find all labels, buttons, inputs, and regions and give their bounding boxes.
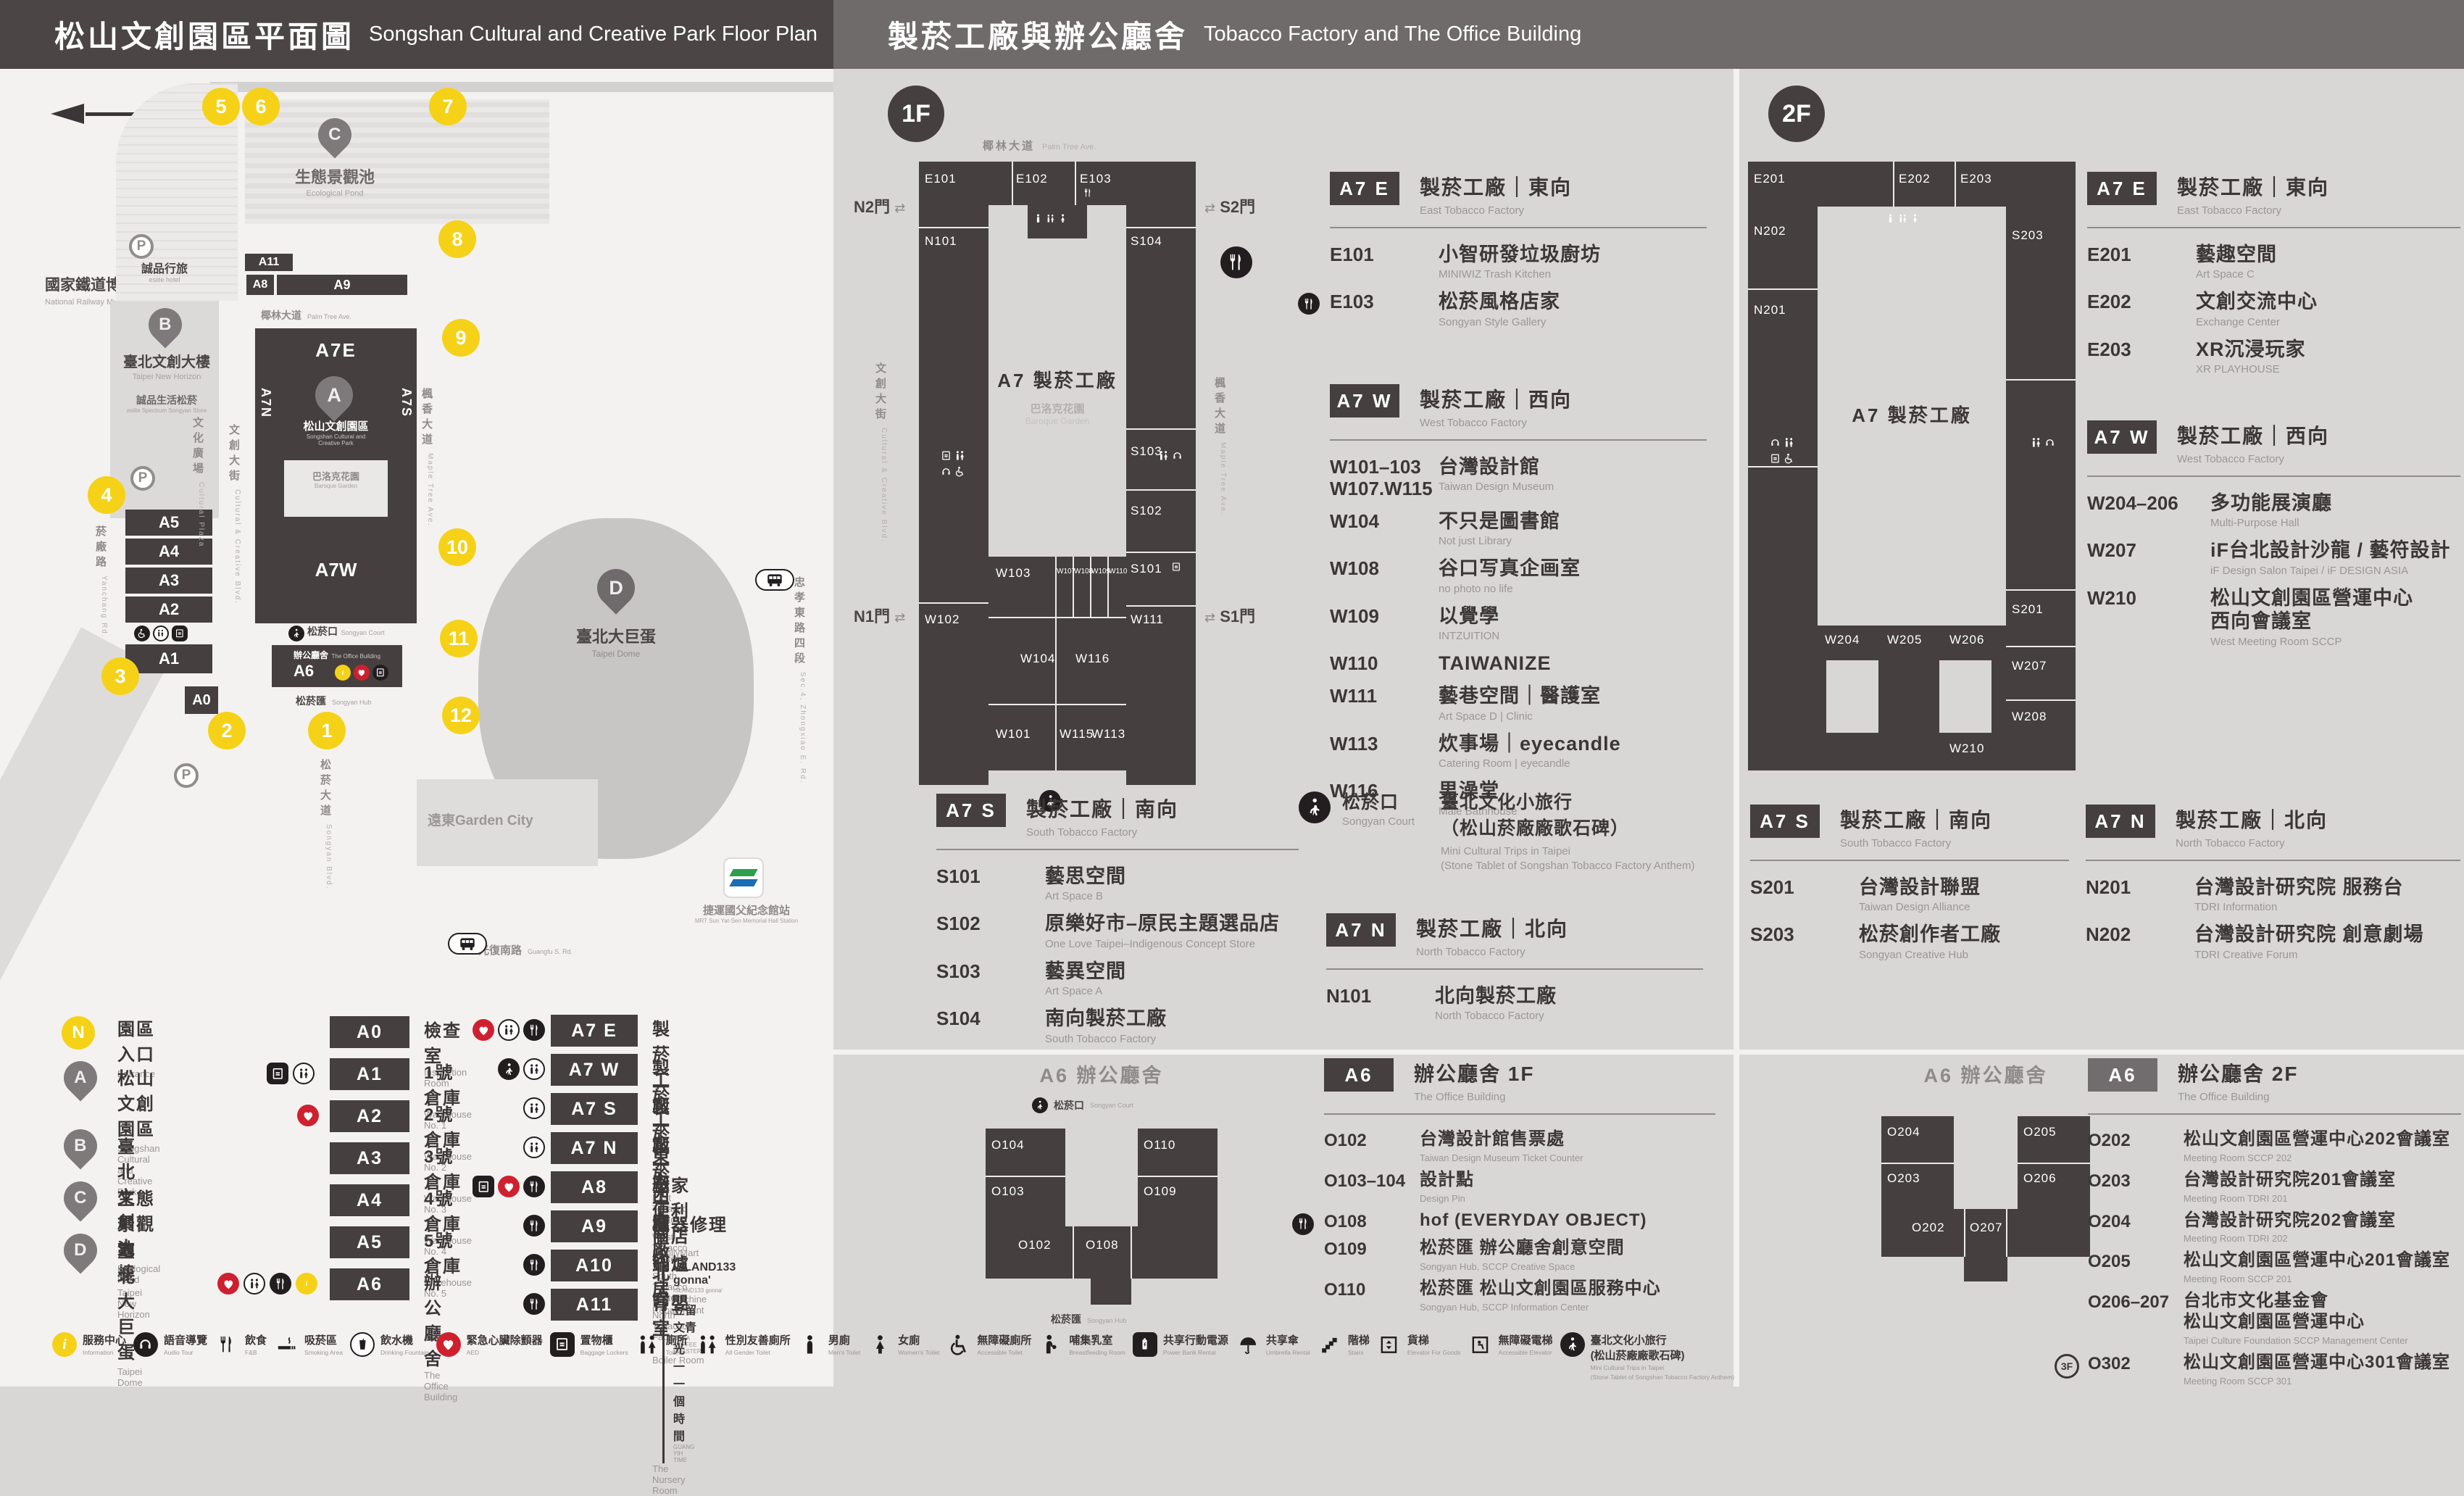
entrance-9: 9: [442, 319, 480, 357]
room-row: E202文創交流中心Exchange Center: [2087, 290, 2460, 328]
songyan-hub-label: 松菸匯Songyan Hub: [296, 694, 372, 708]
accessible-toilet-icon: [946, 1332, 971, 1357]
songyan-hub-plan-label: 松菸匯Songyan Hub: [1051, 1312, 1127, 1326]
room-row: O109松菸匯 辦公廳舍創意空間Songyan Hub, SCCP Creati…: [1324, 1238, 1715, 1272]
plan-room: O202: [1912, 1221, 1945, 1235]
section-a6-1f: A6 辦公廳舍 1FThe Office Building O102台灣設計館售…: [1324, 1058, 1715, 1319]
aed-icon: [217, 1273, 239, 1295]
fnb-icon: [523, 1215, 545, 1237]
dome-label: 臺北大巨蛋 Taipei Dome: [529, 624, 703, 659]
audio-tour-icon: [133, 1332, 158, 1357]
room-row: W207iF台北設計沙龍 / 藝符設計iF Design Salon Taipe…: [2087, 539, 2460, 576]
songyan-blvd-label: 松菸大道Songyan Blvd.: [317, 759, 333, 890]
warehouse-icons: [134, 626, 188, 641]
info-icon: i: [52, 1332, 77, 1357]
a7e-badge: A7 E: [2087, 172, 2157, 205]
mrt-label: 捷運國父紀念館站 MRT Sun Yat-Sen Memorial Hall S…: [652, 902, 833, 924]
power-bank-icon: [1133, 1332, 1157, 1357]
room-row: O108hof (EVERYDAY OBJECT): [1324, 1210, 1715, 1232]
room-row: O110松菸匯 松山文創園區服務中心Songyan Hub, SCCP Info…: [1324, 1279, 1715, 1313]
legend-a1-icons: [267, 1063, 315, 1084]
locker-icon: [372, 665, 388, 681]
room-row: O205松山文創園區營運中心201會議室Meeting Room SCCP 20…: [2088, 1250, 2461, 1284]
fnb-icon: [215, 1332, 239, 1357]
park-label: 松山文創園區 Songshan Cultural and Creative Pa…: [255, 418, 417, 446]
aed-icon: [436, 1332, 461, 1357]
toilet-icon: [153, 626, 169, 641]
parking-icon: P: [129, 234, 154, 259]
plan-room: O109: [1144, 1184, 1177, 1199]
mini-trip-icon: [288, 626, 304, 641]
plan-room: O102: [1018, 1238, 1052, 1252]
facility-item: 置物櫃Baggage Lockers: [550, 1332, 628, 1381]
legend-a5-badge: A5: [330, 1226, 409, 1258]
locker-icon: [172, 626, 188, 641]
room-row: E101小智研發垃圾廚坊MINIWIZ Trash Kitchen: [1330, 243, 1707, 280]
zhongxiao-rd-label: 忠孝東路四段Sec.4, Zhongxiao E. Rd.: [791, 576, 807, 784]
section-title-en: Tobacco Factory and The Office Building: [1204, 22, 1581, 46]
new-horizon-label: 臺北文創大樓 Taipei New Horizon 誠品生活松菸 eslite …: [101, 350, 232, 414]
fnb-icon: [523, 1254, 545, 1276]
plan-room: O103: [991, 1184, 1025, 1199]
plan-room: O104: [991, 1138, 1025, 1152]
fnb-icon: [270, 1273, 291, 1295]
entrance-6: 6: [242, 88, 280, 125]
plan-room: W113: [1091, 727, 1125, 741]
map-a0: A0: [185, 686, 218, 714]
plan-room: W101: [996, 727, 1031, 741]
maple-ave-label-1f: 楓香大道Maple Tree Ave.: [1212, 377, 1227, 516]
plan-room: E102: [1016, 172, 1048, 186]
plan-room: W207: [2012, 659, 2047, 673]
legend-a9-badge: A9: [551, 1210, 638, 1242]
a6-badge: A6: [1324, 1058, 1394, 1092]
toilet-icon: [636, 1332, 660, 1357]
legend-a1-badge: A1: [330, 1058, 409, 1090]
plan-room: O108: [1086, 1238, 1119, 1252]
palm-ave-label: 椰林大道Palm Tree Ave.: [261, 308, 351, 323]
ecological-pond: [245, 99, 549, 224]
facility-item: 語音導覽Audio Tour: [133, 1332, 207, 1381]
mini-trip-icon: [1032, 1097, 1048, 1113]
road-diagonal: [0, 627, 165, 1011]
floorplan-2f: E201 E202 E203 N202 N201 S203 S201 W204 …: [1748, 162, 2076, 770]
facility-item: 飲食F&B: [215, 1332, 267, 1381]
legend-a11-label: 育嬰室光一 一個時間GUANG YIH TIME The Nursery Roo…: [652, 1289, 694, 1496]
facility-item: 男廁Men's Toilet: [798, 1332, 860, 1381]
breastfeeding-icon: [1039, 1332, 1063, 1357]
map-a7w: A7W: [284, 517, 388, 623]
a7n-badge: A7 N: [2086, 805, 2155, 838]
maple-ave-label: 楓香大道Maple Tree Ave.: [419, 388, 434, 527]
floor-3f-badge: 3F: [2055, 1354, 2079, 1379]
plan-room: N101: [925, 234, 957, 249]
entrance-8: 8: [438, 220, 476, 258]
map-a6: A6: [294, 662, 314, 681]
park-map: 國家鐵道博物館 National Railway Museum C 生態景觀池 …: [0, 69, 833, 1011]
info-icon: i: [296, 1273, 317, 1295]
baroque-garden-label: 巴洛克花園 Baroque Garden: [988, 401, 1126, 426]
plan-room: E203: [1960, 172, 1992, 186]
panel-divider: [1733, 69, 1739, 1387]
room-row: W113炊事場｜eyecandleCatering Room | eyecand…: [1330, 732, 1707, 770]
facility-item: 共享行動電源Power Bank Rental: [1133, 1332, 1228, 1381]
room-row: O102台灣設計館售票處Taiwan Design Museum Ticket …: [1324, 1129, 1715, 1163]
umbrella-icon: [1236, 1332, 1260, 1357]
plan-room: E202: [1899, 172, 1931, 186]
mens-toilet-icon: [798, 1332, 823, 1357]
fnb-icon: [1220, 246, 1252, 278]
locker-icon: [267, 1063, 288, 1084]
room-row: W104不只是圖書館Not just Library: [1330, 510, 1707, 547]
toilet-icon: [244, 1273, 265, 1295]
yanchang-rd-label: 菸廠路Yanchang Rd.: [93, 525, 108, 639]
legend-a7s-badge: A7 S: [551, 1093, 638, 1125]
entrance-10: 10: [438, 528, 476, 566]
plan-room: W208: [2012, 710, 2047, 724]
facility-item: 哺集乳室Breastfeeding Room: [1039, 1332, 1125, 1381]
mini-trip-icon: [1299, 791, 1331, 823]
parking-icon: P: [174, 763, 199, 788]
facility-item: i服務中心Information: [52, 1332, 126, 1381]
room-row: S103藝異空間Art Space A: [936, 960, 1299, 997]
a7e-badge: A7 E: [1330, 172, 1399, 205]
map-a7e: A7E: [255, 328, 417, 372]
facility-item: 無障礙電梯Accessible Elevator: [1468, 1332, 1553, 1381]
goods-elevator-icon: [1377, 1332, 1402, 1357]
room-row: S203松菸創作者工廠Songyan Creative Hub: [1750, 923, 2069, 960]
locker-icon: [550, 1332, 575, 1357]
plan-room: N201: [1754, 303, 1786, 317]
room-row: E203XR沉浸玩家XR PLAYHOUSE: [2087, 338, 2460, 375]
facility-item: 廁所Toilet: [636, 1332, 688, 1381]
gate-arrows-icon: ⇄: [1204, 610, 1215, 625]
room-row: W204–206多功能展演廳Multi-Purpose Hall: [2087, 491, 2460, 529]
bus-stop-icon: [448, 933, 487, 955]
accessible-elevator-icon: [1468, 1332, 1493, 1357]
entrance-3: 3: [101, 657, 139, 695]
plan-room: O203: [1887, 1171, 1920, 1186]
aed-icon: [297, 1105, 319, 1126]
legend-a6-badge: A6: [330, 1268, 409, 1300]
facility-legend: i服務中心Information 語音導覽Audio Tour 飲食F&B 吸菸…: [52, 1332, 1733, 1381]
legend-a11-badge: A11: [551, 1289, 638, 1321]
songyan-court-note: 松菸口Songyan Court 臺北文化小旅行 （松山菸廠廠歌石碑） Mini…: [1299, 791, 1705, 872]
garden-city-label: 遠東Garden City: [428, 810, 533, 829]
room-row: W108谷口写真企画室no photo no life: [1330, 557, 1707, 594]
gate-s1: ⇄ S1門: [1204, 604, 1255, 627]
a7s-badge: A7 S: [936, 794, 1006, 827]
room-row: N202台灣設計研究院 創意劇場TDRI Creative Forum: [2086, 923, 2460, 960]
gate-arrows-icon: ⇄: [894, 610, 905, 625]
plan-room: O206: [2023, 1171, 2057, 1186]
drinking-fountain-icon: [350, 1332, 375, 1357]
entrance-4: 4: [88, 476, 125, 514]
songyan-court-plan-label: 松菸口Songyan Court: [1032, 1097, 1133, 1113]
page-title-zh: 松山文創園區平面圖: [54, 12, 354, 57]
room-row: W110TAIWANIZE: [1330, 652, 1707, 675]
smoking-icon: [274, 1332, 299, 1357]
legend-a10-badge: A10: [551, 1250, 638, 1281]
plan-room: S101: [1131, 562, 1162, 576]
room-row: S101藝思空間Art Space B: [936, 865, 1299, 902]
floor-2f-badge: 2F: [1768, 86, 1825, 142]
plan-room: W115: [1060, 727, 1094, 741]
info-icon: i: [335, 665, 351, 681]
room-row: O203台灣設計研究院201會議室Meeting Room TDRI 201: [2088, 1170, 2461, 1204]
facility-item: 階梯Stairs: [1318, 1332, 1370, 1381]
cultural-plaza-label: 文化廣場Cultural Plaza: [190, 417, 205, 547]
aed-icon: [354, 665, 370, 681]
section-a7n-2f: A7 N 製菸工廠｜北向North Tobacco Factory N201台灣…: [2086, 805, 2460, 971]
legend-a6-icons: i: [217, 1273, 317, 1295]
plan-center-label: A7 製菸工廠: [988, 366, 1126, 393]
map-a7n: A7N: [258, 388, 273, 418]
section-a7s-2f: A7 S 製菸工廠｜南向South Tobacco Factory S201台灣…: [1750, 805, 2069, 971]
room-row: O202松山文創園區營運中心202會議室Meeting Room SCCP 20…: [2088, 1129, 2461, 1163]
legend-a4-badge: A4: [330, 1184, 409, 1216]
plan-room: W110: [1109, 568, 1127, 575]
room-row: S201台灣設計聯盟Taiwan Design Alliance: [1750, 876, 2069, 913]
room-row: O103–104設計點Design Pin: [1324, 1170, 1715, 1204]
room-row: O204台灣設計研究院202會議室Meeting Room TDRI 202: [2088, 1210, 2461, 1244]
entrance-11: 11: [440, 620, 478, 657]
entrance-12: 12: [442, 697, 480, 734]
stairs-icon: [1318, 1332, 1342, 1357]
plan-center-label: A7 製菸工廠: [1818, 401, 2006, 428]
entrance-1: 1: [308, 712, 346, 749]
plan-room: S203: [2012, 228, 2044, 243]
map-a3: A3: [125, 568, 212, 594]
plan-room: S104: [1131, 234, 1162, 249]
legend-a3-badge: A3: [330, 1142, 409, 1174]
room-row: 3FO302松山文創園區營運中心301會議室Meeting Room SCCP …: [2088, 1352, 2461, 1387]
plan-room: S102: [1131, 504, 1162, 518]
wheelchair-icon: [134, 626, 150, 641]
eslite-hotel-label: 誠品行旅 eslite hotel: [110, 259, 219, 283]
room-row: W210松山文創園區營運中心西向會議室West Meeting Room SCC…: [2087, 586, 2460, 648]
plan-room: W111: [1131, 612, 1164, 627]
gate-n1: N1門 ⇄: [854, 604, 905, 627]
legend-a7w-icons: [498, 1058, 545, 1080]
plan-room: W205: [1887, 633, 1922, 647]
plan-room: W102: [925, 612, 960, 627]
baroque-label: 巴洛克花園 Baroque Garden: [284, 469, 388, 489]
fnb-icon: [523, 1293, 545, 1315]
legend-a2-badge: A2: [330, 1100, 409, 1132]
plan-room: W109: [1091, 568, 1110, 575]
plan-room: W107: [1057, 568, 1075, 575]
floor-1f-badge: 1F: [888, 86, 944, 142]
plan-room: W104: [1020, 652, 1055, 666]
a7w-badge: A7 W: [2087, 420, 2157, 454]
map-a7-west-wing: [255, 460, 284, 623]
legend-a8-badge: A8: [551, 1171, 638, 1203]
section-title-zh: 製菸工廠與辦公廳舍: [888, 12, 1188, 57]
entrance-7: 7: [429, 88, 467, 125]
all-gender-toilet-icon: [695, 1332, 720, 1357]
plan-room: W108: [1074, 568, 1093, 575]
section-a7e-1f: A7 E 製菸工廠｜東向East Tobacco Factory E101小智研…: [1330, 172, 1707, 338]
a6-badge: A6: [2088, 1058, 2157, 1092]
cc-blvd-label-1f: 文創大街Cultural & Creative Blvd.: [873, 362, 888, 543]
map-a1: A1: [125, 644, 212, 673]
plan-room: E103: [1080, 172, 1112, 186]
room-row: S102原樂好市–原民主題選品店One Love Taipei–Indigeno…: [936, 912, 1299, 949]
plan-room: S201: [2012, 602, 2044, 617]
map-a7-east-wing: [388, 460, 417, 623]
womens-toilet-icon: [867, 1332, 892, 1357]
legend-a0-badge: A0: [330, 1016, 409, 1048]
facility-item: 飲水機Drinking Fountain: [350, 1332, 429, 1381]
map-a11: A11: [245, 254, 293, 271]
entrance-5: 5: [202, 88, 240, 125]
a7w-badge: A7 W: [1330, 384, 1399, 417]
legend-a8-icons: [473, 1176, 545, 1197]
facility-item: 貨梯Elevator For Goods: [1377, 1332, 1461, 1381]
toilet-icon: [523, 1097, 545, 1119]
plan-room: E101: [925, 172, 957, 186]
toilet-icon: [523, 1136, 545, 1158]
facility-item: 吸菸區Smoking Area: [274, 1332, 343, 1381]
legend-a7e-badge: A7 E: [551, 1015, 638, 1047]
office-building-label: 辦公廳舍 The Office Building: [272, 649, 402, 662]
legend-a7w-badge: A7 W: [551, 1054, 638, 1086]
gate-n2: N2門 ⇄: [854, 194, 905, 217]
legend-pin-n: N: [62, 1016, 95, 1050]
section-a7e-2f: A7 E 製菸工廠｜東向East Tobacco Factory E201藝趣空…: [2087, 172, 2460, 385]
guangfu-rd-label: 光復南路Guangfu S. Rd.: [478, 942, 573, 957]
gate-arrows-icon: ⇄: [1204, 201, 1215, 215]
facility-item: 緊急心臟除顫器AED: [436, 1332, 543, 1381]
legend-a7e-icons: [473, 1019, 545, 1041]
fnb-icon: [1292, 1213, 1314, 1235]
room-row: O206–207台北市文化基金會松山文創園區營運中心Taipei Culture…: [2088, 1291, 2461, 1346]
plan-room: E201: [1754, 172, 1786, 186]
room-row: N201台灣設計研究院 服務台TDRI Information: [2086, 876, 2460, 913]
toilet-icon: [293, 1063, 315, 1084]
facility-item: 臺北文化小旅行 (松山菸廠廠歌石碑)Mini Cultural Trips in…: [1560, 1332, 1735, 1381]
section-a7w-1f: A7 W 製菸工廠｜西向West Tobacco Factory W101–10…: [1330, 384, 1707, 827]
facility-item: 性別友善廁所All Gender Toilet: [695, 1332, 791, 1381]
section-a6-2f: A6 辦公廳舍 2FThe Office Building O202松山文創園區…: [2088, 1058, 2461, 1393]
parking-icon: P: [130, 466, 155, 491]
room-row: S104南向製菸工廠South Tobacco Factory: [936, 1007, 1299, 1044]
a6-plan-1f: A6 辦公廳舍 松菸口Songyan Court O104 O103 O102 …: [957, 1060, 1246, 1328]
plan-room: W204: [1825, 633, 1860, 647]
plan-room: W103: [996, 566, 1031, 581]
songyan-court-label: 松菸口 Songyan Court: [307, 624, 385, 639]
room-row: W111藝巷空間｜醫護室Art Space D | Clinic: [1330, 684, 1707, 722]
plan-room: O207: [1970, 1221, 2003, 1235]
metro-logo: [725, 859, 762, 897]
room-row: N101北向製菸工廠North Tobacco Factory: [1326, 984, 1703, 1022]
road-top: [210, 82, 833, 92]
plan-room: W116: [1075, 652, 1110, 666]
entrance-2: 2: [208, 712, 246, 749]
mini-trip-icon: [1560, 1332, 1585, 1357]
gate-s2: ⇄ S2門: [1204, 194, 1255, 217]
pond-label: 生態景觀池 Ecological Pond: [248, 165, 422, 198]
plan-room: W206: [1949, 633, 1984, 647]
facility-item: 無障礙廁所Accessible Toilet: [946, 1332, 1031, 1381]
room-row: W101–103W107.W115台灣設計館Taiwan Design Muse…: [1330, 455, 1707, 500]
a7s-badge: A7 S: [1750, 805, 1820, 838]
bus-stop-icon: [755, 569, 794, 591]
plan-room: O204: [1887, 1125, 1920, 1139]
map-a7s: A7S: [399, 388, 414, 417]
map-a9: A9: [277, 275, 407, 295]
section-a7n-1f: A7 N 製菸工廠｜北向North Tobacco Factory N101北向…: [1326, 913, 1703, 1031]
header-left: 松山文創園區平面圖 Songshan Cultural and Creative…: [0, 0, 833, 69]
map-a2: A2: [125, 597, 212, 623]
legend-a7n-badge: A7 N: [551, 1132, 638, 1164]
section-a7w-2f: A7 W 製菸工廠｜西向West Tobacco Factory W204–20…: [2087, 420, 2460, 657]
a6-plan-2f: A6 辦公廳舍 O204 O203 O202 O207 O206 O205: [1855, 1060, 2116, 1299]
map-a8: A8: [246, 275, 274, 295]
plan-room: O110: [1144, 1138, 1175, 1152]
facility-item: 女廁Women's Toilet: [867, 1332, 939, 1381]
section-a7s-1f: A7 S 製菸工廠｜南向South Tobacco Factory S101藝思…: [936, 794, 1299, 1055]
room-row: E201藝趣空間Art Space C: [2087, 243, 2460, 280]
page-title-en: Songshan Cultural and Creative Park Floo…: [369, 22, 817, 46]
cc-blvd-label: 文創大街Cultural & Creative Blvd.: [226, 424, 241, 604]
plan-room: W210: [1949, 741, 1984, 756]
gate-arrows-icon: ⇄: [894, 201, 905, 215]
floorplan-1f: E101 E102 E103 N101 S104 S103 S102 S101 …: [919, 162, 1196, 785]
facility-item: 共享傘Umbrella Rental: [1236, 1332, 1310, 1381]
palm-ave-label-1f: 椰林大道Palm Tree Ave.: [983, 138, 1096, 153]
plan-room: N202: [1754, 224, 1786, 238]
room-row: W109以覺學INTZUITION: [1330, 604, 1707, 642]
a7n-badge: A7 N: [1326, 913, 1396, 947]
header-right: 製菸工廠與辦公廳舍 Tobacco Factory and The Office…: [833, 0, 2464, 69]
plan-room: O205: [2023, 1125, 2057, 1139]
room-row: E103松菸風格店家Songyan Style Gallery: [1330, 290, 1707, 328]
